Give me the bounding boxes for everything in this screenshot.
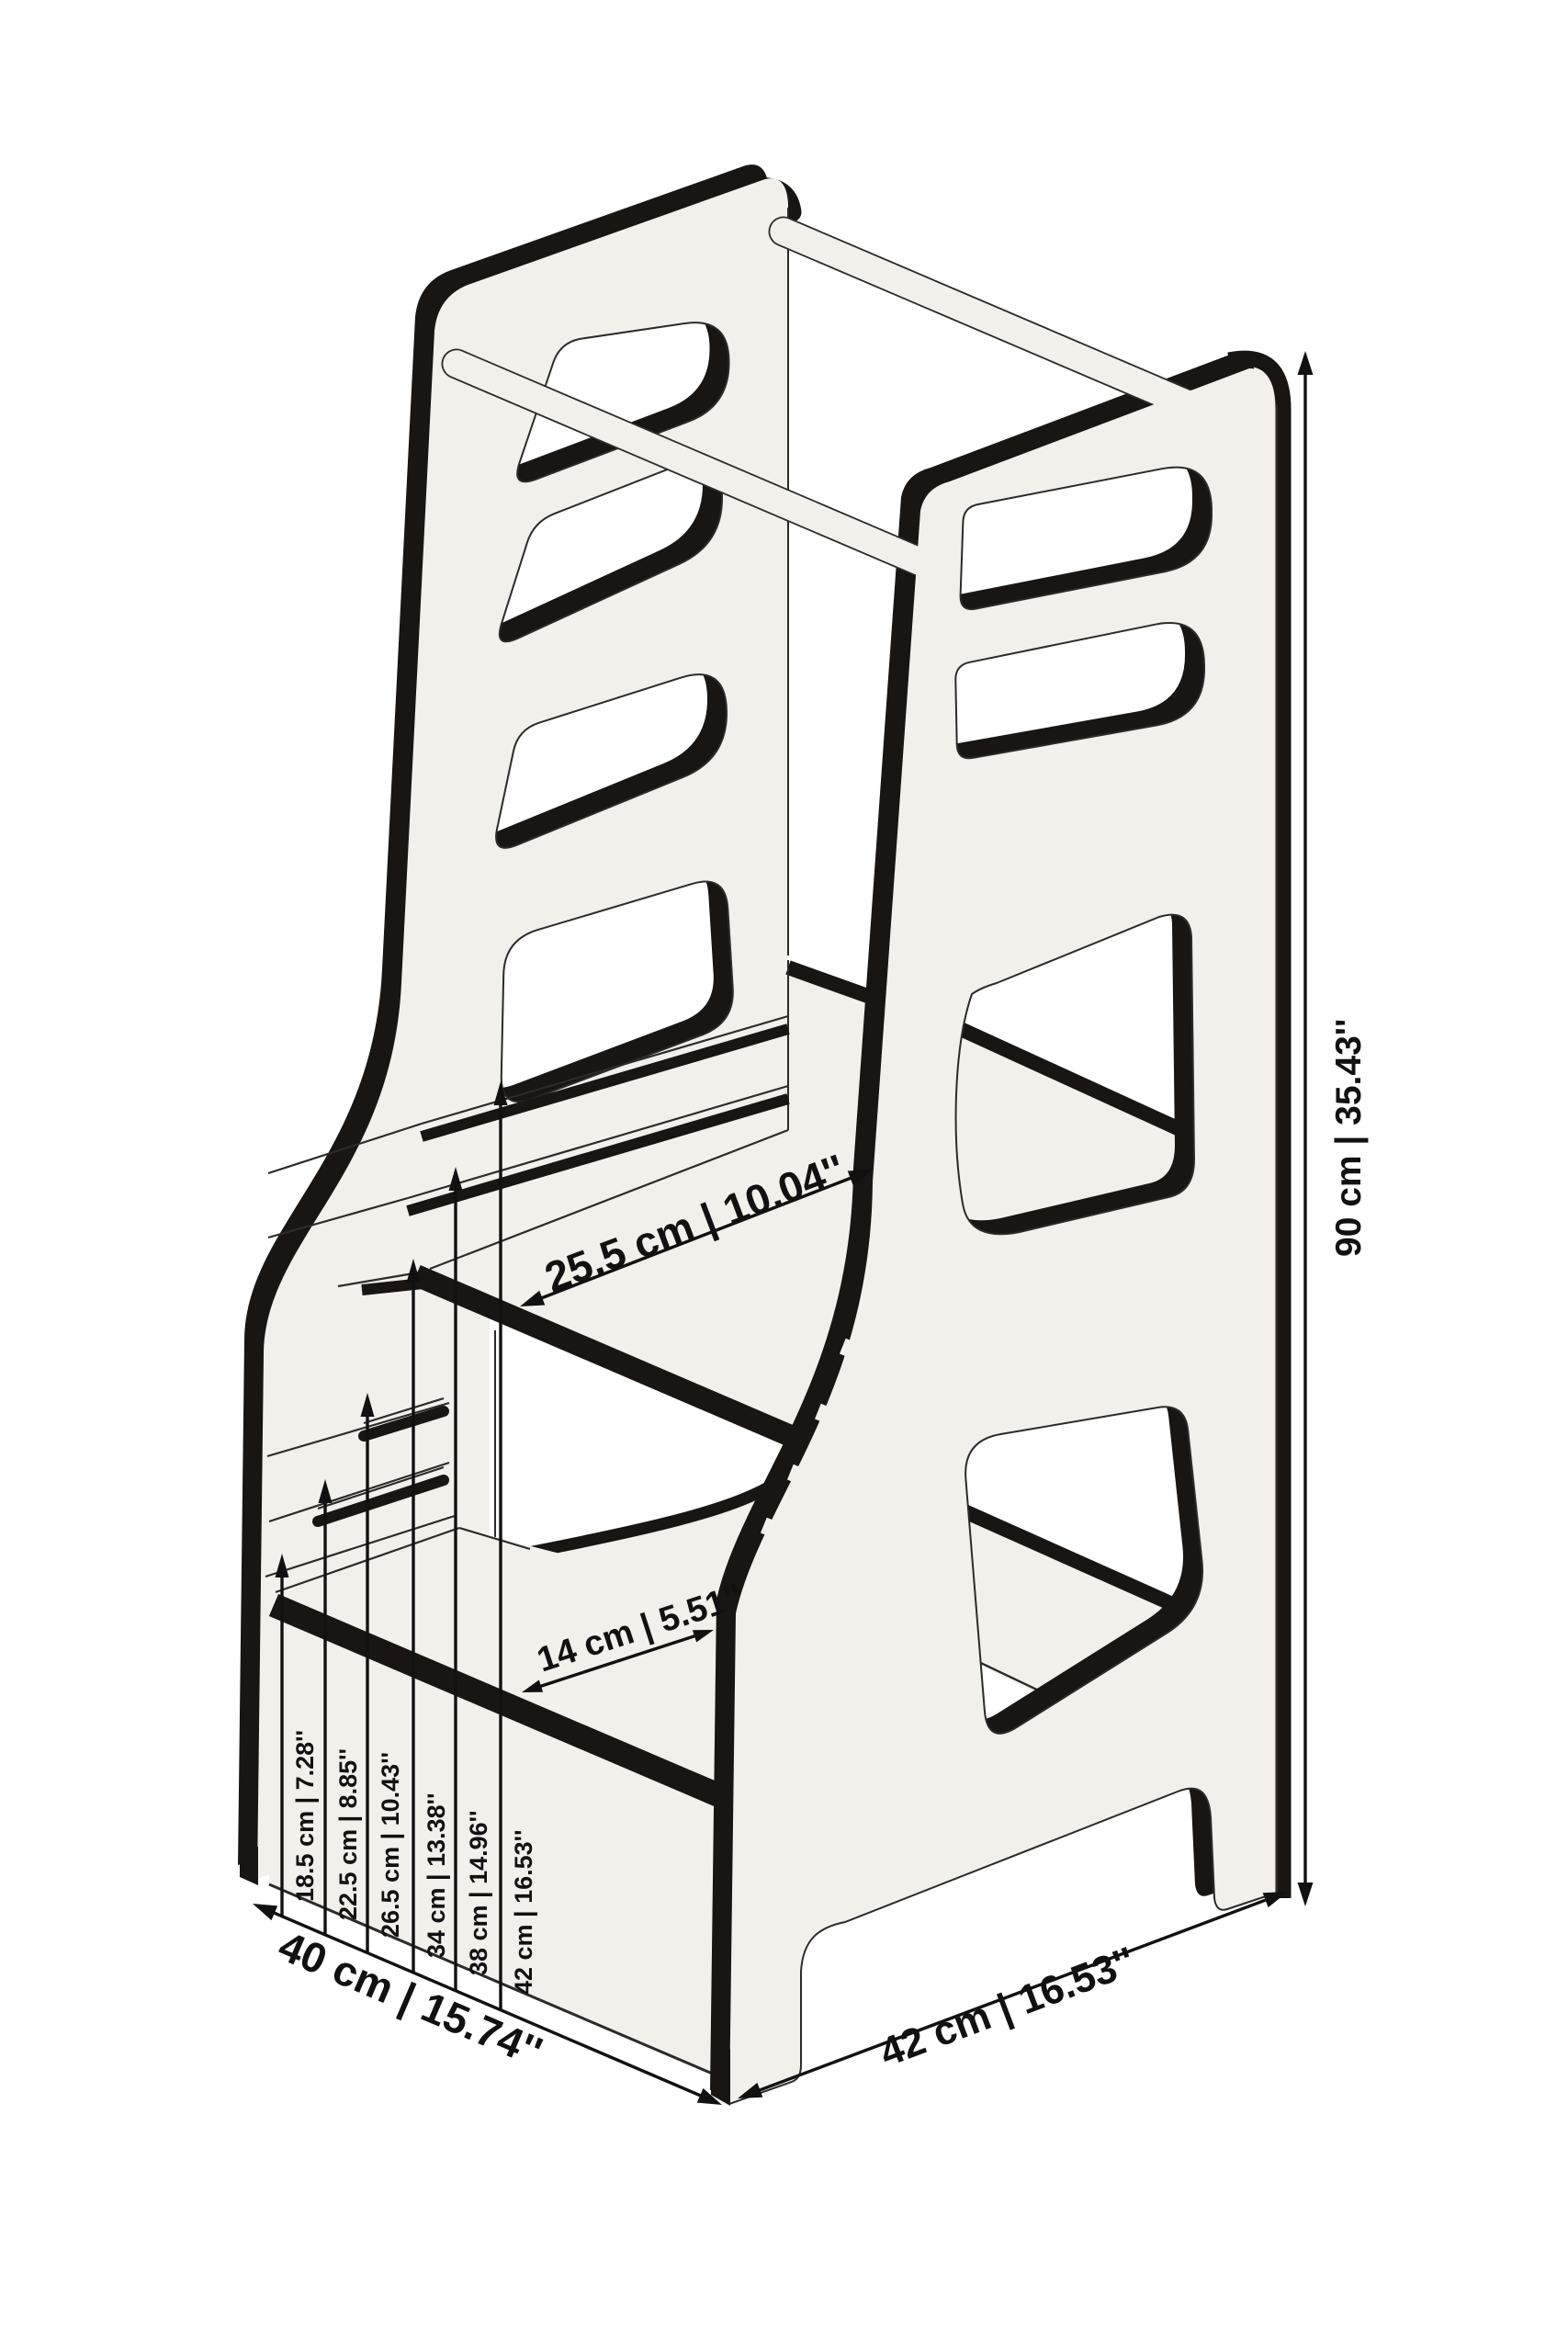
svg-text:26.5 cm | 10.43'': 26.5 cm | 10.43'' <box>377 1752 404 1938</box>
svg-text:34 cm | 13.38'': 34 cm | 13.38'' <box>423 1792 450 1958</box>
svg-text:42 cm | 16.53'': 42 cm | 16.53'' <box>510 1829 537 1995</box>
svg-text:38 cm | 14.96'': 38 cm | 14.96'' <box>465 1810 492 1975</box>
svg-text:18.5 cm | 7.28'': 18.5 cm | 7.28'' <box>291 1730 319 1902</box>
svg-text:90 cm | 35.43'': 90 cm | 35.43'' <box>1329 1019 1369 1257</box>
svg-text:22.5 cm | 8.85'': 22.5 cm | 8.85'' <box>334 1748 362 1920</box>
